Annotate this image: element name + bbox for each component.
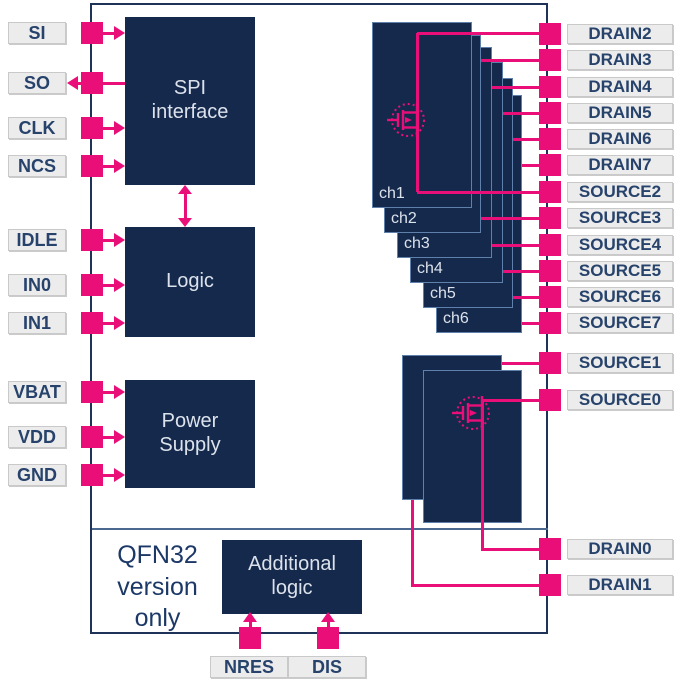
mosfet-icon-low-side-glyph [443, 383, 503, 443]
pin-pad-drain7 [539, 154, 561, 176]
pin-label-nres: NRES [210, 656, 288, 678]
pin-pad-source7 [539, 312, 561, 334]
pin-label-clk: CLK [8, 117, 66, 139]
arrow-right-icon-vbat [114, 385, 125, 399]
mosfet-icon-high-side [378, 90, 438, 150]
pin-pad-in0 [81, 274, 103, 296]
pin-pad-drain5 [539, 102, 561, 124]
pin-label-source0: SOURCE0 [567, 390, 673, 410]
pin-pad-source4 [539, 234, 561, 256]
power-supply-block: Power Supply [125, 380, 255, 488]
additional-logic-block: Additional logic [222, 540, 362, 614]
spi-logic-arrow-shaft [184, 193, 187, 219]
pin-label-idle: IDLE [8, 229, 66, 251]
arrow-right-icon-vdd [114, 430, 125, 444]
pin-label-drain0: DRAIN0 [567, 539, 673, 559]
pin-pad-si [81, 22, 103, 44]
pin-label-in0: IN0 [8, 274, 66, 296]
qfn32-version-note: QFN32 version only [100, 540, 215, 635]
mosfet-icon-low-side [443, 383, 503, 443]
pin-label-drain2: DRAIN2 [567, 24, 673, 44]
pin-label-so: SO [8, 72, 66, 94]
channel-label-ch1: ch1 [379, 185, 405, 203]
pin-pad-drain4 [539, 76, 561, 98]
net-line-h11 [522, 322, 540, 325]
arrow-shaft-dis [327, 620, 330, 640]
pin-label-vbat: VBAT [8, 381, 66, 403]
net-line-h0 [417, 32, 540, 35]
arrow-up-icon-nres [243, 612, 257, 622]
pin-pad-idle [81, 229, 103, 251]
pin-pad-source3 [539, 207, 561, 229]
pin-label-drain1: DRAIN1 [567, 575, 673, 595]
channel-label-ch5: ch5 [430, 285, 456, 303]
pin-pad-drain6 [539, 128, 561, 150]
arrow-down-icon-spi-logic [178, 218, 192, 227]
net-line-h15 [411, 584, 540, 587]
arrow-right-icon-in0 [114, 278, 125, 292]
net-line-h14 [481, 548, 540, 551]
pin-pad-source6 [539, 286, 561, 308]
net-line-h8 [492, 244, 540, 247]
pin-pad-source0 [539, 389, 561, 411]
net-line-h2 [481, 59, 540, 62]
arrow-up-icon-dis [321, 612, 335, 622]
arrow-right-icon-clk [114, 121, 125, 135]
net-line-h12 [502, 362, 540, 365]
pin-label-drain6: DRAIN6 [567, 129, 673, 149]
mosfet-icon-high-side-glyph [378, 90, 438, 150]
arrow-right-icon-si [114, 26, 125, 40]
pin-pad-drain1 [539, 574, 561, 596]
pin-label-source2: SOURCE2 [567, 182, 673, 202]
net-line-h9 [503, 270, 540, 273]
arrow-right-icon-ncs [114, 159, 125, 173]
pin-label-si: SI [8, 22, 66, 44]
pin-pad-gnd [81, 464, 103, 486]
pin-pad-source2 [539, 181, 561, 203]
pin-label-gnd: GND [8, 464, 66, 486]
arrow-shaft-nres [249, 620, 252, 640]
net-line-h10 [513, 296, 540, 299]
channel-label-ch3: ch3 [404, 235, 430, 253]
arrow-right-icon-in1 [114, 316, 125, 330]
net-line-v2 [411, 500, 414, 586]
pin-label-drain4: DRAIN4 [567, 77, 673, 97]
pin-pad-ncs [81, 155, 103, 177]
qfn32-section-divider [92, 528, 548, 530]
pin-pad-drain2 [539, 23, 561, 45]
pin-pad-source1 [539, 352, 561, 374]
channel-label-ch6: ch6 [443, 310, 469, 328]
net-line-h4 [503, 112, 540, 115]
logic-block: Logic [125, 227, 255, 337]
pin-label-drain7: DRAIN7 [567, 155, 673, 175]
net-line-h5 [513, 138, 540, 141]
channel-label-ch4: ch4 [417, 260, 443, 278]
pin-label-source6: SOURCE6 [567, 287, 673, 307]
pin-label-in1: IN1 [8, 312, 66, 334]
pin-pad-vdd [81, 426, 103, 448]
net-line-h7 [481, 217, 540, 220]
arrow-right-icon-idle [114, 233, 125, 247]
pin-label-source4: SOURCE4 [567, 235, 673, 255]
arrow-left-icon-so [67, 76, 78, 90]
arrow-shaft-so [78, 82, 125, 85]
net-line-h1 [417, 191, 540, 194]
block-diagram: SPI interface Logic Power Supply Additio… [0, 0, 680, 692]
channel-label-ch2: ch2 [391, 210, 417, 228]
pin-label-drain3: DRAIN3 [567, 50, 673, 70]
spi-interface-block: SPI interface [125, 17, 255, 185]
pin-label-vdd: VDD [8, 426, 66, 448]
pin-label-drain5: DRAIN5 [567, 103, 673, 123]
pin-label-source3: SOURCE3 [567, 208, 673, 228]
pin-label-source7: SOURCE7 [567, 313, 673, 333]
arrow-right-icon-gnd [114, 468, 125, 482]
pin-pad-vbat [81, 381, 103, 403]
pin-label-dis: DIS [288, 656, 366, 678]
net-line-h6 [522, 164, 540, 167]
pin-label-ncs: NCS [8, 155, 66, 177]
pin-pad-in1 [81, 312, 103, 334]
net-line-h3 [492, 86, 540, 89]
arrow-up-icon-spi-logic [178, 185, 192, 194]
pin-label-source1: SOURCE1 [567, 353, 673, 373]
pin-pad-clk [81, 117, 103, 139]
pin-pad-source5 [539, 260, 561, 282]
pin-pad-drain3 [539, 49, 561, 71]
pin-pad-drain0 [539, 538, 561, 560]
pin-label-source5: SOURCE5 [567, 261, 673, 281]
